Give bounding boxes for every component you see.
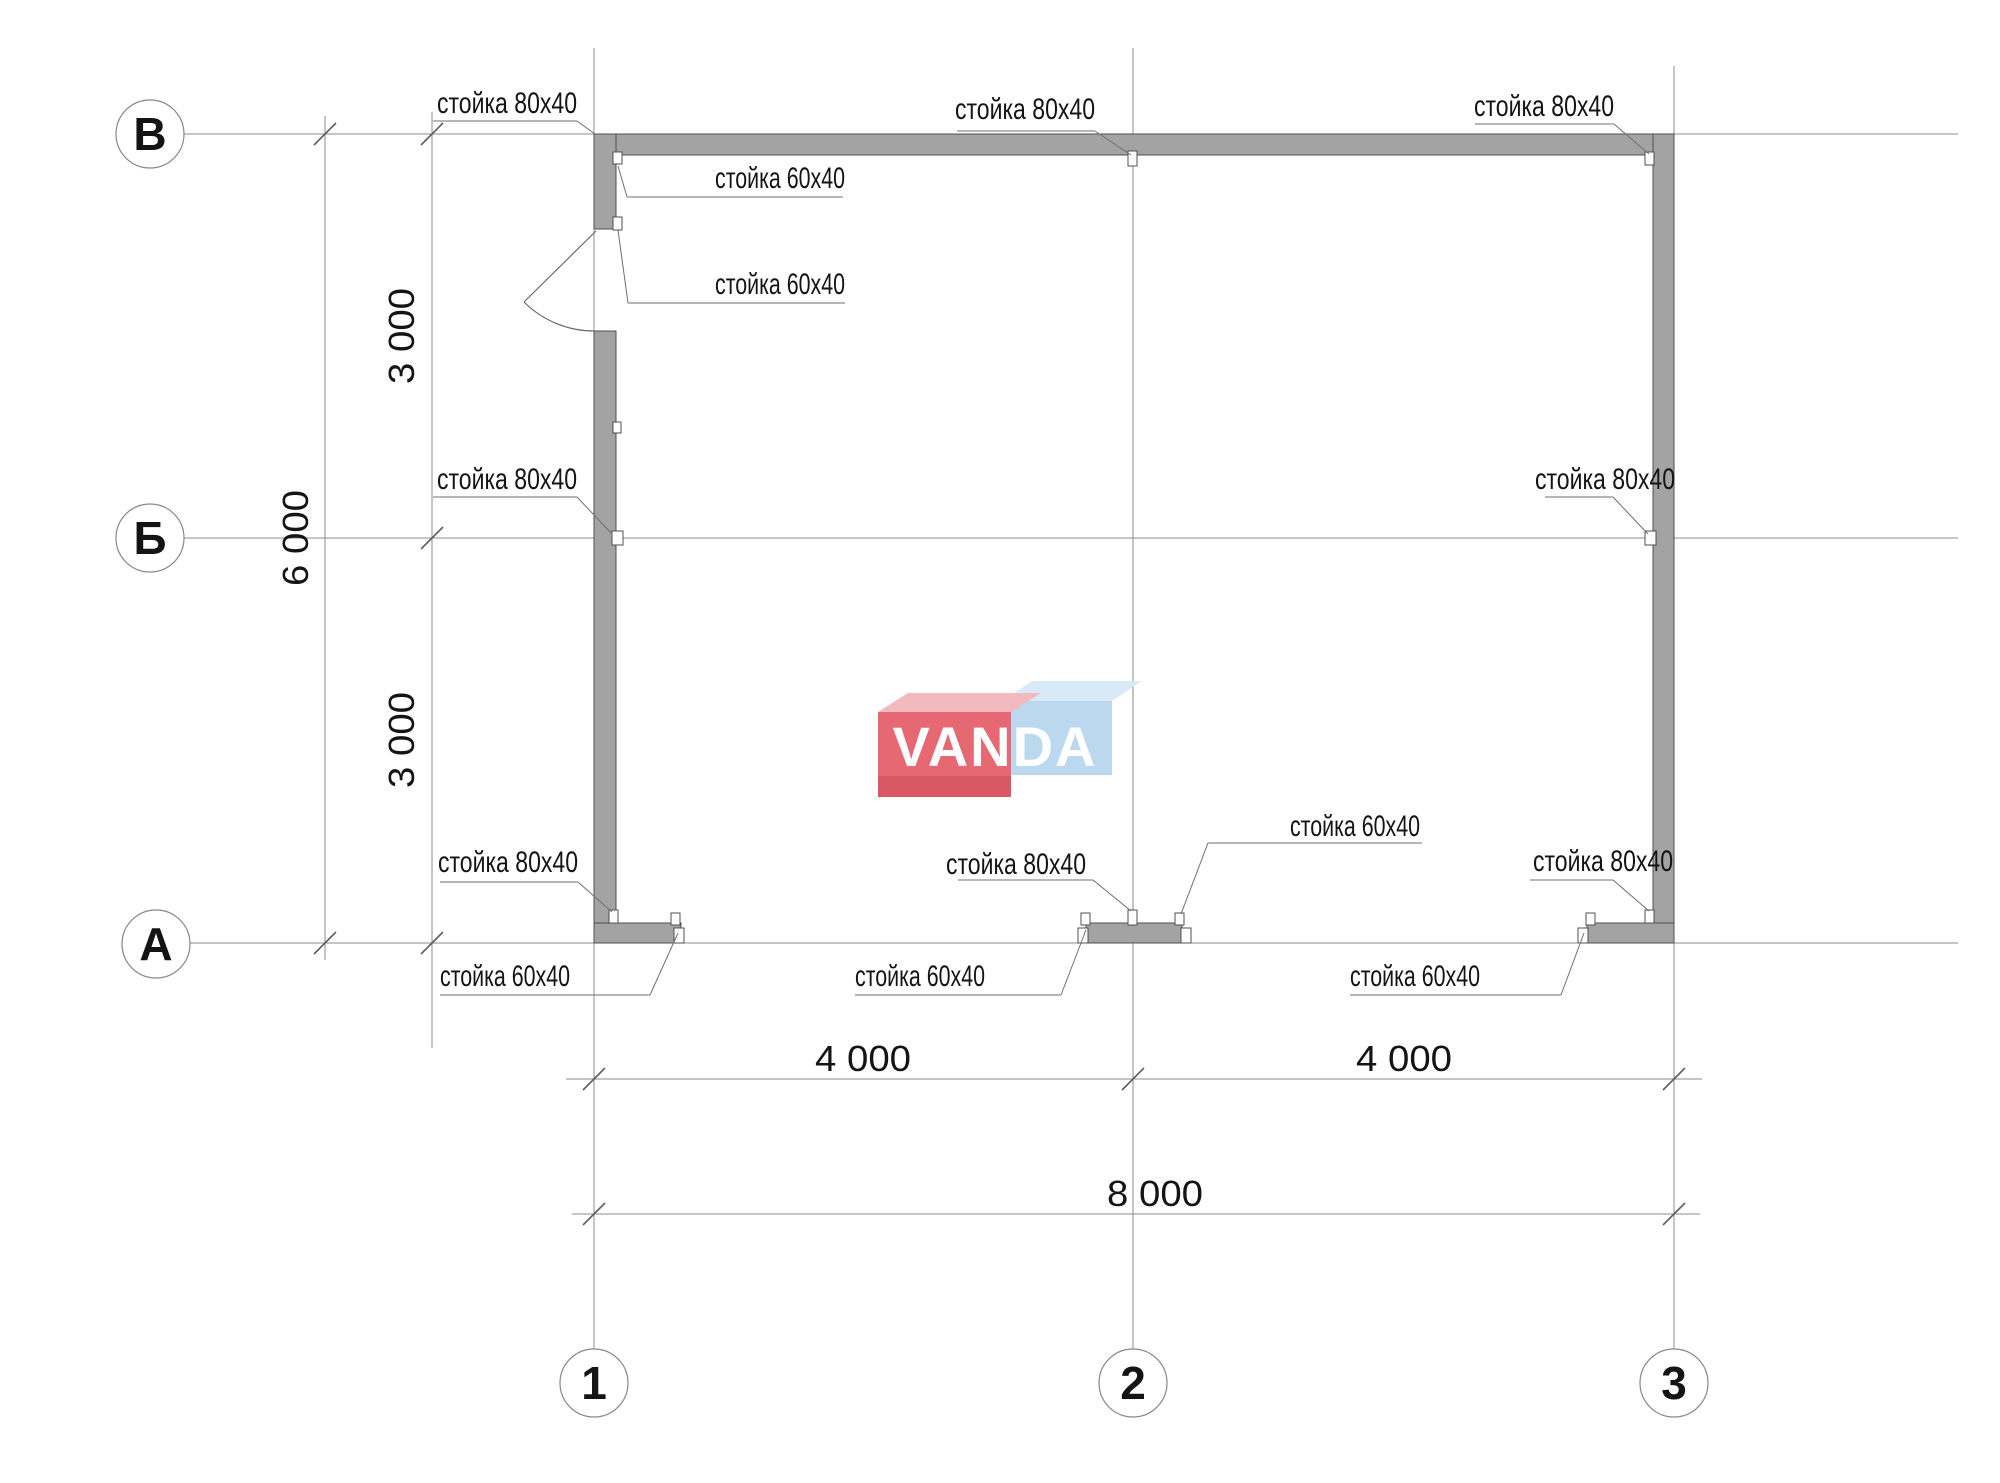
post-marker-60x40-door-jamb — [613, 217, 622, 230]
post-label: стойка 60x40 — [855, 960, 985, 993]
post-label: стойка 80x40 — [1533, 845, 1673, 878]
post-marker-60x40-bottom-mid-right-jamb — [1175, 913, 1184, 925]
dimension-value: 8 000 — [1107, 1173, 1203, 1214]
post-label-leader — [577, 121, 595, 134]
post-marker-80x40-bottom-right-corner — [1645, 910, 1654, 923]
axis-bubble-label: В — [133, 108, 166, 160]
post-marker-80x40-left-axisB — [612, 531, 623, 545]
post-label: стойка 80x40 — [1535, 463, 1675, 496]
post-label: стойка 80x40 — [946, 848, 1086, 881]
floor-plan-drawing: VANDA 3 0003 0006 0004 000 — [0, 0, 2000, 1483]
post-label-leader — [1093, 880, 1131, 911]
post-label: стойка 60x40 — [1350, 960, 1480, 993]
post-label: стойка 60x40 — [715, 268, 845, 301]
post-notch-bottom-mid-right — [1181, 928, 1191, 943]
post-label: стойка 80x40 — [437, 463, 577, 496]
post-notch-bottom-mid-left — [1078, 928, 1088, 943]
post-marker-80x40-bottom-left-corner — [609, 910, 618, 923]
bottom-wall-left-segment — [594, 923, 681, 943]
vanda-logo: VANDA — [878, 681, 1142, 797]
post-label: стойка 80x40 — [437, 87, 577, 120]
post-label-leader — [1561, 933, 1584, 995]
dimension-value: 3 000 — [381, 288, 422, 384]
left-wall-upper-segment — [594, 134, 616, 229]
axis-bubble-label: А — [139, 918, 172, 970]
post-notch-bottom-left — [674, 928, 684, 943]
post-label-leader — [1613, 880, 1649, 911]
post-marker-80x40-bottom-axis2 — [1128, 910, 1137, 925]
axis-bubble-label: Б — [133, 512, 166, 564]
post-label: стойка 60x40 — [440, 960, 570, 993]
post-marker-80x40-top-right-corner — [1645, 152, 1654, 165]
post-marker-80x40-top-axis2 — [1128, 151, 1137, 166]
post-label-leader — [1181, 843, 1208, 914]
post-label: стойка 80x40 — [1474, 90, 1614, 123]
dimension-value: 6 000 — [275, 490, 316, 586]
logo-red-base — [878, 776, 1011, 797]
post-label-leader — [618, 166, 627, 197]
bottom-wall-right-segment — [1587, 923, 1674, 943]
post-label: стойка 60x40 — [1290, 810, 1420, 843]
post-label: стойка 80x40 — [955, 93, 1095, 126]
post-marker-60x40-top-left — [613, 152, 622, 164]
logo-wordmark: VANDA — [893, 715, 1098, 778]
dimension-value: 4 000 — [1356, 1038, 1452, 1079]
door-leaf — [524, 231, 596, 302]
post-label: стойка 80x40 — [438, 846, 578, 879]
post-label: стойка 60x40 — [715, 162, 845, 195]
door — [524, 231, 596, 331]
post-marker-60x40-bottom-mid-left-jamb — [1081, 913, 1090, 925]
dimension-value: 3 000 — [381, 692, 422, 788]
post-marker-60x40-bottom-left-jamb — [671, 913, 680, 925]
floor-plan-sheet: VANDA 3 0003 0006 0004 000 — [0, 0, 2000, 1483]
door-swing-arc — [524, 302, 596, 331]
dimension-lines: 3 0003 0006 0004 0004 0008 000 — [275, 112, 1702, 1225]
axis-bubble-label: 2 — [1120, 1357, 1146, 1409]
post-marker-60x40-bottom-right-jamb — [1586, 913, 1595, 925]
axis-bubble-label: 3 — [1661, 1357, 1687, 1409]
bottom-wall-middle-segment — [1086, 923, 1182, 943]
post-label-leader — [1061, 930, 1086, 995]
axis-bubble-label: 1 — [581, 1357, 607, 1409]
post-label-leader — [618, 230, 628, 303]
post-marker-left-wall — [613, 422, 621, 433]
post-label-leader — [1613, 497, 1648, 534]
dimension-value: 4 000 — [815, 1038, 911, 1079]
